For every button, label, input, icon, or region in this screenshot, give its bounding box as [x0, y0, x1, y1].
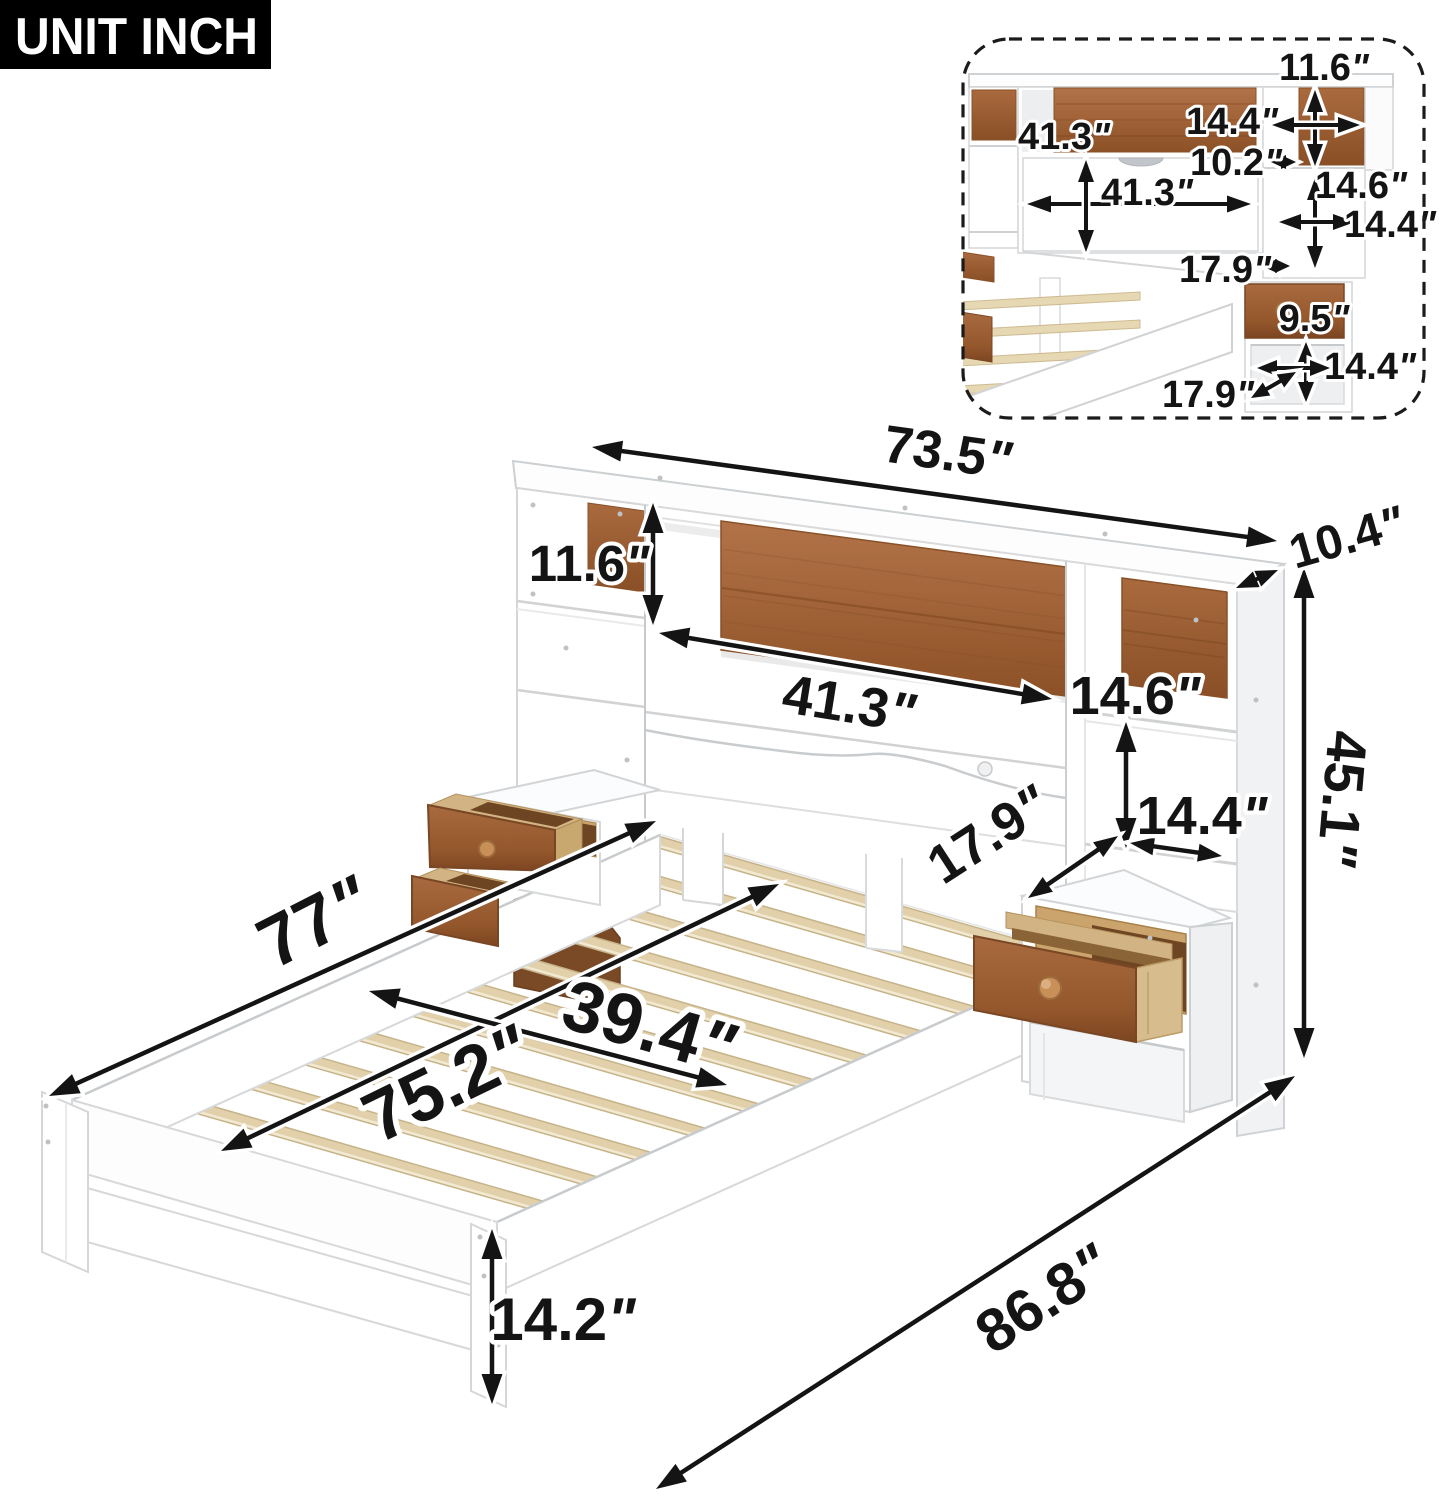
svg-text:10.2": 10.2" [1190, 142, 1283, 184]
svg-text:14.4": 14.4" [1186, 101, 1279, 143]
svg-text:41.3": 41.3" [1101, 172, 1194, 214]
svg-text:14.6": 14.6" [1070, 666, 1202, 726]
svg-text:14.2": 14.2" [490, 1286, 637, 1353]
svg-text:11.6": 11.6" [1279, 47, 1370, 89]
svg-text:41.3": 41.3" [1018, 116, 1111, 158]
svg-text:14.6": 14.6" [1315, 165, 1408, 207]
svg-text:14.4": 14.4" [1324, 346, 1417, 388]
svg-text:UNIT INCH: UNIT INCH [15, 8, 258, 66]
svg-text:17.9": 17.9" [1179, 249, 1272, 291]
svg-text:14.4": 14.4" [1137, 786, 1269, 846]
svg-text:45.1": 45.1" [1305, 728, 1380, 870]
svg-text:11.6": 11.6" [529, 535, 650, 592]
svg-text:9.5": 9.5" [1279, 298, 1351, 340]
svg-text:17.9": 17.9" [1162, 374, 1255, 416]
